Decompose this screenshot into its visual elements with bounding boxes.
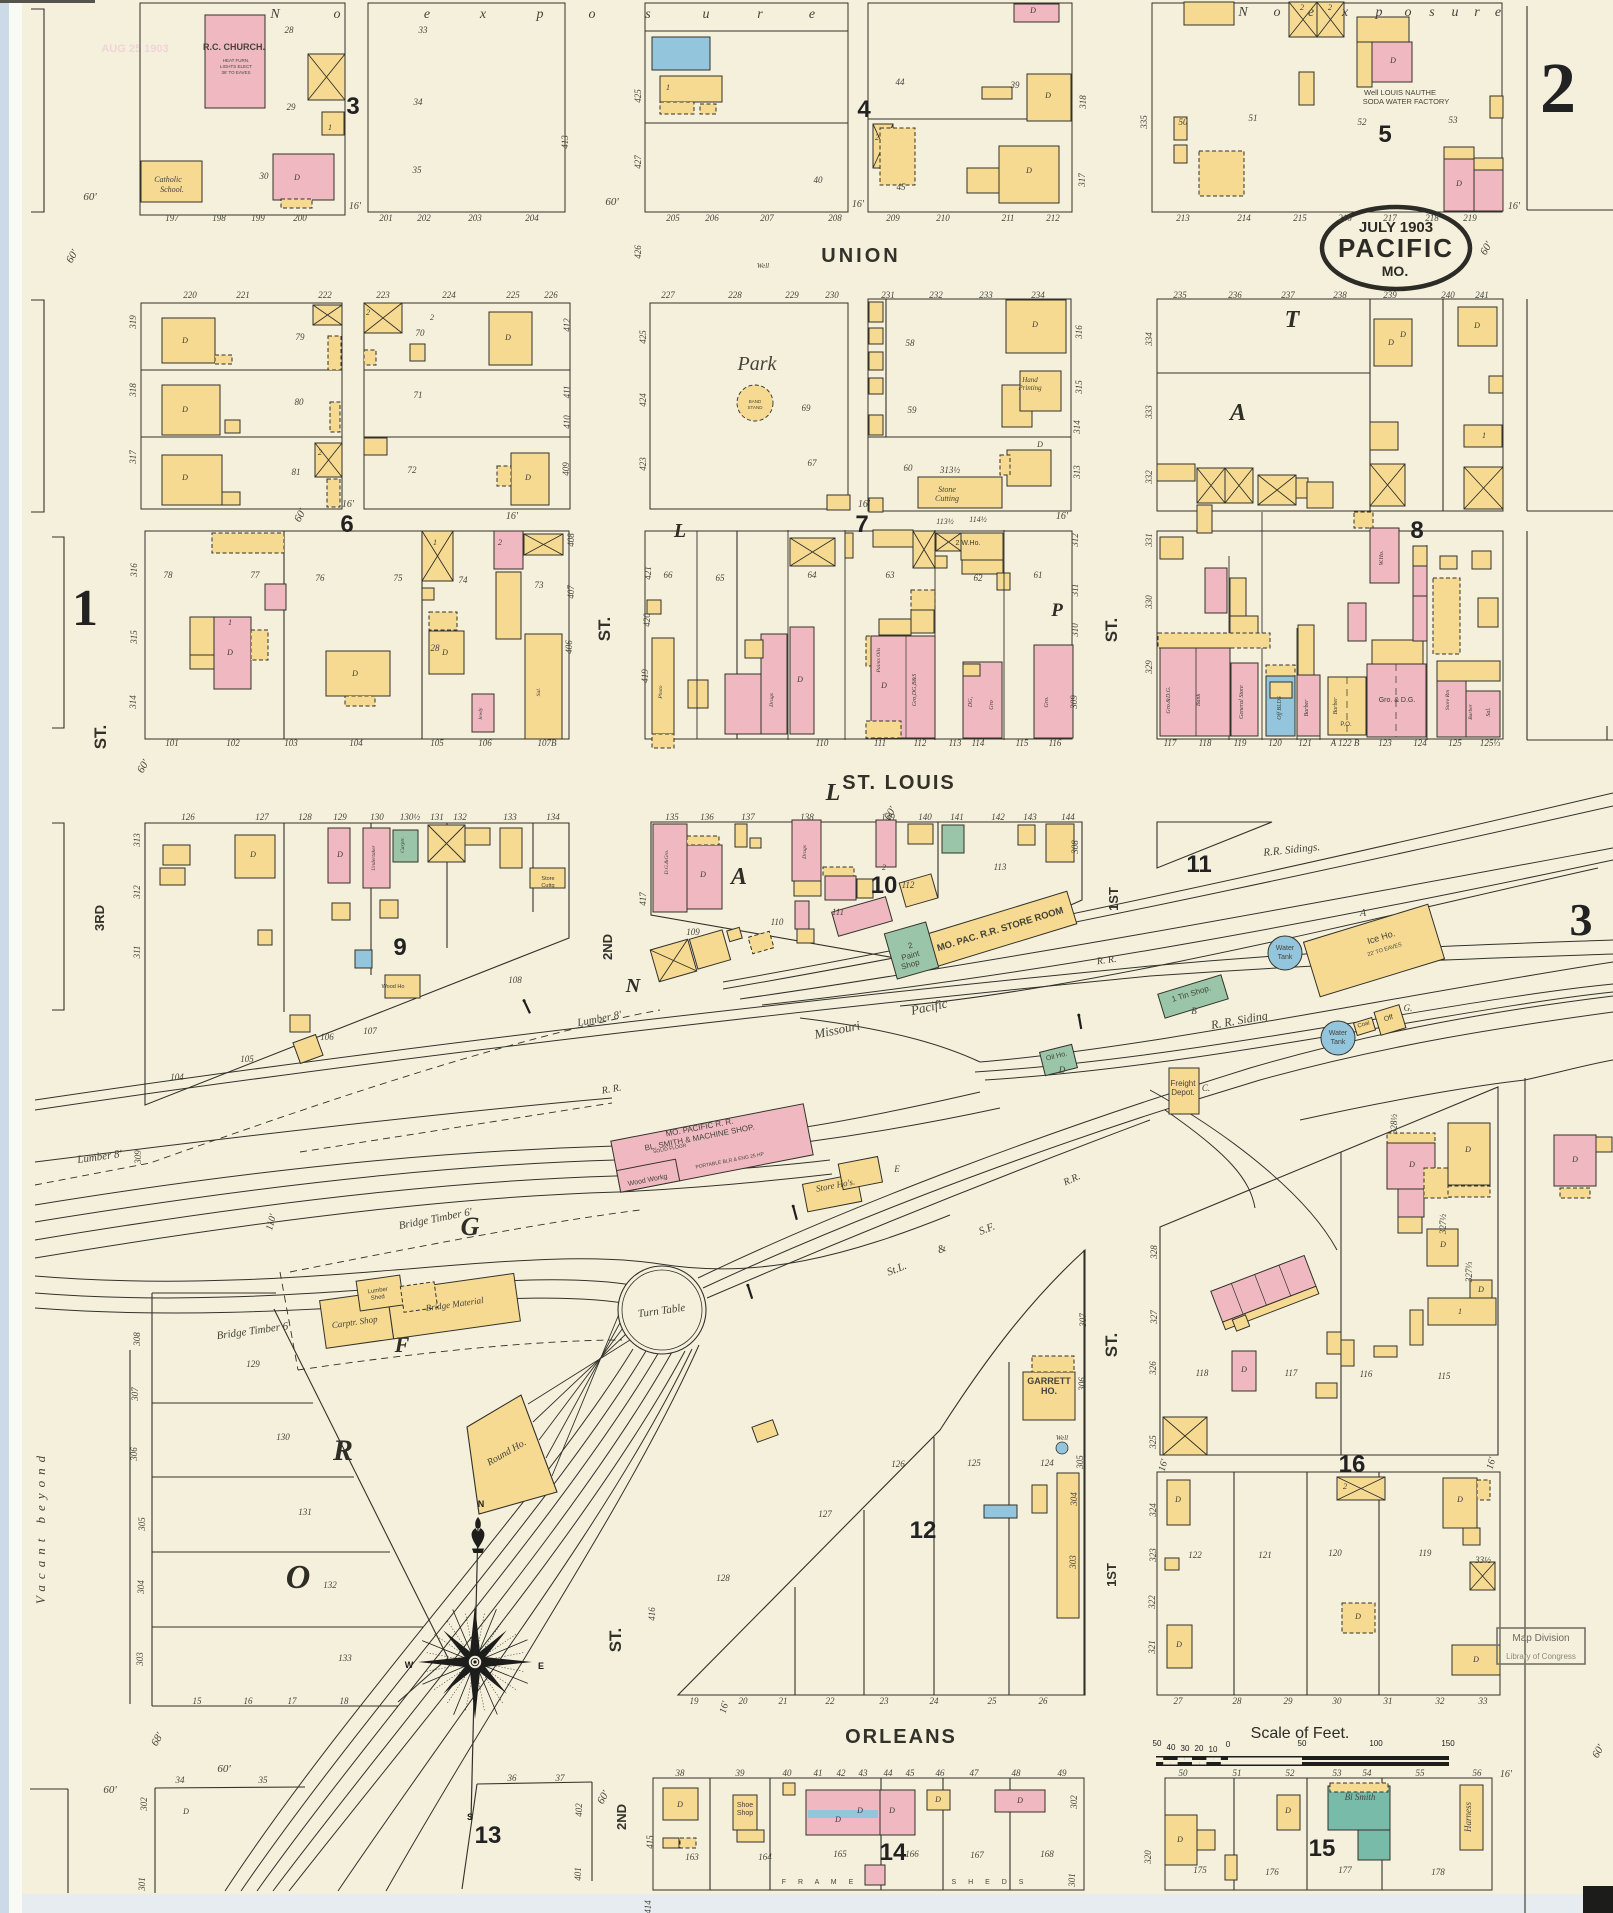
svg-text:HEAT FURN.: HEAT FURN.: [223, 58, 250, 63]
svg-text:314: 314: [128, 695, 138, 710]
svg-text:R.C. CHURCH.: R.C. CHURCH.: [203, 42, 265, 52]
svg-text:D: D: [1240, 1365, 1247, 1374]
svg-text:210: 210: [936, 213, 950, 223]
svg-text:9: 9: [393, 934, 406, 961]
svg-text:45: 45: [906, 1768, 916, 1778]
svg-text:28: 28: [431, 643, 441, 653]
svg-text:144: 144: [1061, 812, 1075, 822]
svg-text:35: 35: [258, 1775, 269, 1785]
svg-text:311: 311: [1070, 584, 1080, 598]
svg-text:s: s: [1429, 5, 1435, 20]
svg-text:302: 302: [1069, 1795, 1079, 1810]
svg-text:42: 42: [837, 1768, 847, 1778]
svg-text:316: 316: [129, 563, 139, 578]
svg-text:217: 217: [1383, 213, 1397, 223]
svg-text:317: 317: [1077, 173, 1087, 188]
svg-text:225: 225: [506, 290, 520, 300]
svg-text:234: 234: [1031, 290, 1045, 300]
svg-text:334: 334: [1144, 332, 1154, 347]
svg-text:66: 66: [664, 570, 674, 580]
svg-text:3RD: 3RD: [92, 905, 107, 931]
svg-text:D: D: [1029, 6, 1036, 15]
svg-text:2: 2: [1328, 3, 1332, 12]
svg-text:2ND: 2ND: [614, 1804, 629, 1830]
svg-text:16': 16': [342, 499, 355, 510]
svg-text:Off BLDS: Off BLDS: [1276, 696, 1283, 720]
svg-text:136: 136: [700, 812, 714, 822]
svg-text:Freight: Freight: [1171, 1079, 1197, 1088]
svg-text:D: D: [504, 333, 511, 342]
svg-text:20: 20: [1195, 1744, 1204, 1753]
svg-text:D: D: [699, 870, 706, 879]
svg-text:D: D: [336, 850, 343, 859]
svg-text:327½: 327½: [1438, 1214, 1448, 1236]
svg-text:17: 17: [288, 1696, 298, 1706]
svg-text:60': 60': [217, 1763, 231, 1775]
svg-text:D.G.&Gro.: D.G.&Gro.: [664, 849, 670, 875]
svg-text:77: 77: [251, 570, 261, 580]
svg-text:4: 4: [857, 96, 871, 123]
svg-text:Gro: Gro: [989, 700, 995, 709]
svg-text:54: 54: [1363, 1768, 1373, 1778]
svg-text:113: 113: [994, 862, 1007, 872]
svg-text:20: 20: [739, 1696, 749, 1706]
svg-text:199: 199: [251, 213, 265, 223]
svg-text:107B: 107B: [538, 738, 558, 748]
svg-text:R: R: [332, 1434, 353, 1467]
svg-text:406: 406: [564, 640, 574, 654]
svg-text:1ST: 1ST: [1106, 887, 1121, 911]
svg-text:A: A: [1228, 400, 1246, 426]
svg-text:74: 74: [459, 575, 469, 585]
svg-text:2: 2: [1300, 3, 1304, 12]
svg-text:229: 229: [785, 290, 799, 300]
svg-text:33: 33: [1478, 1696, 1489, 1706]
svg-text:D: D: [1389, 56, 1396, 65]
svg-text:407: 407: [566, 585, 576, 599]
svg-text:E: E: [893, 1164, 900, 1174]
svg-text:W: W: [405, 1660, 414, 1670]
svg-text:D: D: [441, 648, 448, 657]
svg-text:2ND: 2ND: [600, 934, 615, 960]
svg-text:10: 10: [871, 872, 898, 899]
svg-text:47: 47: [970, 1768, 980, 1778]
svg-text:HO.: HO.: [1041, 1386, 1057, 1396]
svg-text:335: 335: [1139, 115, 1149, 130]
svg-text:164: 164: [758, 1852, 772, 1862]
svg-text:p: p: [536, 7, 544, 22]
svg-text:133: 133: [503, 812, 517, 822]
svg-text:15: 15: [193, 1696, 203, 1706]
svg-text:e: e: [809, 7, 815, 22]
svg-text:15: 15: [1309, 1835, 1336, 1862]
svg-text:D: D: [1455, 179, 1462, 188]
svg-text:50: 50: [1298, 1739, 1307, 1748]
svg-text:D: D: [1399, 330, 1406, 339]
svg-text:53: 53: [1333, 1768, 1343, 1778]
svg-text:P.O.: P.O.: [1340, 722, 1352, 728]
svg-text:Gro,DG,B&S: Gro,DG,B&S: [912, 674, 918, 706]
svg-text:46: 46: [936, 1768, 946, 1778]
svg-text:2: 2: [1540, 48, 1576, 128]
svg-text:x: x: [479, 7, 487, 22]
svg-text:43: 43: [859, 1768, 869, 1778]
svg-text:Drugs: Drugs: [769, 693, 775, 708]
svg-text:12: 12: [910, 1517, 937, 1544]
svg-text:S H E D S: S H E D S: [952, 1879, 1029, 1886]
svg-text:Barber: Barber: [1304, 699, 1310, 717]
svg-text:Park: Park: [737, 353, 778, 375]
svg-text:59: 59: [908, 405, 918, 415]
svg-text:STAND: STAND: [748, 405, 764, 410]
svg-text:307: 307: [130, 1387, 140, 1402]
svg-text:UNION: UNION: [821, 245, 900, 267]
svg-text:D: D: [834, 1815, 841, 1824]
svg-text:1: 1: [228, 618, 232, 627]
svg-text:327⅓: 327⅓: [1464, 1262, 1474, 1284]
svg-text:128: 128: [716, 1573, 730, 1583]
svg-text:Barber: Barber: [1333, 697, 1339, 715]
svg-text:235: 235: [1173, 290, 1187, 300]
svg-text:52: 52: [1286, 1768, 1296, 1778]
svg-text:Store Rm: Store Rm: [1445, 690, 1451, 710]
svg-text:402: 402: [574, 1803, 584, 1817]
svg-text:425: 425: [638, 330, 648, 344]
svg-text:106: 106: [320, 1032, 334, 1042]
svg-text:16': 16': [1056, 511, 1069, 522]
svg-text:73: 73: [535, 580, 545, 590]
svg-text:36' TO EAVES: 36' TO EAVES: [221, 70, 250, 75]
svg-text:52: 52: [1358, 117, 1368, 127]
svg-text:Wood Ho: Wood Ho: [382, 984, 405, 990]
svg-text:Tank: Tank: [1278, 954, 1293, 961]
svg-text:119: 119: [1234, 738, 1247, 748]
svg-text:ST.: ST.: [606, 1628, 625, 1653]
svg-text:240: 240: [1441, 290, 1455, 300]
svg-text:LIGHTS ELECT: LIGHTS ELECT: [220, 64, 252, 69]
svg-text:218: 218: [1425, 213, 1439, 223]
svg-text:317: 317: [128, 450, 138, 465]
svg-text:2: 2: [318, 448, 322, 457]
svg-text:228: 228: [728, 290, 742, 300]
svg-text:120: 120: [1328, 1548, 1342, 1558]
svg-text:112: 112: [902, 880, 915, 890]
svg-text:214: 214: [1237, 213, 1251, 223]
svg-text:10: 10: [1209, 1745, 1218, 1754]
svg-text:128: 128: [298, 812, 312, 822]
svg-text:305: 305: [137, 1517, 147, 1532]
svg-text:B: B: [1191, 1006, 1197, 1016]
svg-text:208: 208: [828, 213, 842, 223]
svg-text:30: 30: [1181, 1744, 1190, 1753]
svg-text:215: 215: [1293, 213, 1307, 223]
svg-text:81: 81: [292, 467, 301, 477]
svg-text:231: 231: [881, 290, 895, 300]
svg-text:207: 207: [760, 213, 774, 223]
svg-text:321: 321: [1147, 1640, 1157, 1655]
svg-text:Cutting: Cutting: [935, 494, 959, 503]
svg-text:s: s: [645, 7, 651, 22]
svg-text:141: 141: [950, 812, 964, 822]
svg-text:2 W.Ho.: 2 W.Ho.: [956, 540, 981, 547]
svg-text:323: 323: [1148, 1548, 1158, 1563]
svg-text:Water: Water: [1276, 945, 1295, 952]
svg-text:53: 53: [1449, 115, 1459, 125]
svg-text:121: 121: [1298, 738, 1312, 748]
svg-text:142: 142: [991, 812, 1005, 822]
svg-text:o: o: [1274, 5, 1281, 20]
svg-text:301: 301: [1067, 1873, 1077, 1888]
svg-text:236: 236: [1228, 290, 1242, 300]
svg-text:30: 30: [259, 171, 270, 181]
svg-text:130: 130: [370, 812, 384, 822]
svg-text:415: 415: [645, 1835, 655, 1849]
svg-text:303: 303: [135, 1652, 145, 1667]
svg-text:F R A M E: F R A M E: [782, 1879, 859, 1886]
svg-text:D: D: [249, 850, 256, 859]
svg-text:138: 138: [800, 812, 814, 822]
svg-text:125⅓: 125⅓: [1480, 738, 1501, 748]
svg-text:D: D: [1439, 1240, 1446, 1249]
svg-text:125: 125: [1448, 738, 1462, 748]
svg-text:E: E: [538, 1661, 544, 1671]
svg-text:114½: 114½: [969, 515, 986, 524]
svg-text:8: 8: [1410, 517, 1423, 544]
svg-text:40: 40: [814, 175, 824, 185]
svg-text:o: o: [334, 7, 341, 22]
svg-text:315: 315: [129, 630, 139, 645]
svg-text:44: 44: [896, 77, 906, 87]
svg-text:General Store: General Store: [1239, 685, 1245, 719]
svg-text:C.: C.: [1202, 1083, 1210, 1093]
svg-text:G: G: [461, 1212, 480, 1241]
svg-text:O: O: [286, 1559, 311, 1596]
svg-text:420: 420: [642, 613, 652, 627]
svg-text:115: 115: [1438, 1371, 1451, 1381]
svg-text:61: 61: [1034, 570, 1043, 580]
svg-text:34: 34: [413, 97, 424, 107]
svg-text:D: D: [181, 473, 188, 482]
svg-text:320: 320: [1143, 1850, 1153, 1865]
svg-text:79: 79: [296, 332, 306, 342]
svg-text:Carptr.: Carptr.: [400, 837, 406, 853]
svg-text:N: N: [269, 7, 280, 22]
svg-text:233: 233: [979, 290, 993, 300]
svg-text:311: 311: [132, 946, 142, 960]
svg-text:D: D: [888, 1806, 895, 1815]
svg-text:D: D: [1571, 1155, 1578, 1164]
svg-text:N: N: [1237, 5, 1248, 20]
svg-text:School.: School.: [160, 185, 184, 194]
svg-text:S: S: [467, 1812, 473, 1822]
svg-text:331: 331: [1144, 533, 1154, 548]
svg-text:230: 230: [825, 290, 839, 300]
svg-text:1: 1: [433, 538, 437, 547]
svg-text:175: 175: [1193, 1865, 1207, 1875]
svg-text:Hand: Hand: [1021, 376, 1038, 384]
svg-text:222: 222: [318, 290, 332, 300]
svg-text:326: 326: [1148, 1361, 1158, 1376]
svg-text:132: 132: [453, 812, 467, 822]
svg-text:202: 202: [417, 213, 431, 223]
svg-text:26: 26: [1039, 1696, 1049, 1706]
svg-text:D: D: [1284, 1806, 1291, 1815]
svg-text:226: 226: [544, 290, 558, 300]
svg-text:314: 314: [1072, 420, 1082, 435]
svg-text:241: 241: [1475, 290, 1489, 300]
svg-text:Well LOUIS NAUTHE: Well LOUIS NAUTHE: [1364, 88, 1436, 97]
svg-text:124: 124: [1413, 738, 1427, 748]
svg-text:Gro. & D.G.: Gro. & D.G.: [1379, 697, 1416, 704]
svg-text:16': 16': [1508, 201, 1521, 212]
svg-text:117: 117: [1164, 738, 1177, 748]
svg-text:D: D: [1016, 1796, 1023, 1805]
svg-text:3: 3: [346, 93, 359, 120]
svg-text:D: D: [1387, 338, 1394, 347]
svg-text:124: 124: [1040, 1458, 1054, 1468]
svg-text:237: 237: [1281, 290, 1295, 300]
svg-text:35: 35: [412, 165, 423, 175]
svg-text:69: 69: [802, 403, 812, 413]
svg-text:332: 332: [1144, 470, 1154, 485]
svg-text:D: D: [181, 336, 188, 345]
svg-text:327: 327: [1149, 1310, 1159, 1325]
svg-text:60': 60': [605, 196, 619, 208]
svg-text:302: 302: [139, 1797, 149, 1812]
svg-text:D: D: [1354, 1612, 1361, 1621]
svg-text:N: N: [625, 975, 642, 997]
svg-text:D: D: [1408, 1160, 1415, 1169]
svg-text:318: 318: [128, 383, 138, 398]
svg-text:21: 21: [779, 1696, 788, 1706]
svg-text:1ST: 1ST: [1104, 1563, 1119, 1587]
svg-text:304: 304: [1069, 1492, 1079, 1507]
svg-text:163: 163: [685, 1852, 699, 1862]
svg-text:125: 125: [967, 1458, 981, 1468]
svg-text:D: D: [524, 473, 531, 482]
svg-text:203: 203: [468, 213, 482, 223]
svg-text:424: 424: [638, 393, 648, 407]
svg-text:D: D: [880, 681, 887, 690]
svg-text:7: 7: [855, 511, 868, 538]
svg-text:Gro.: Gro.: [1044, 697, 1050, 708]
svg-text:62: 62: [974, 573, 984, 583]
svg-text:120: 120: [1268, 738, 1282, 748]
svg-text:44: 44: [884, 1768, 894, 1778]
svg-text:5: 5: [1378, 121, 1391, 148]
svg-text:409: 409: [561, 462, 571, 476]
svg-text:40: 40: [783, 1768, 793, 1778]
svg-text:BAND: BAND: [749, 399, 762, 404]
svg-text:D: D: [676, 1800, 683, 1809]
svg-text:1: 1: [72, 580, 98, 637]
svg-text:417: 417: [638, 892, 648, 906]
svg-text:2: 2: [430, 313, 434, 322]
svg-text:425: 425: [633, 89, 643, 103]
svg-text:116: 116: [1360, 1369, 1373, 1379]
svg-text:1: 1: [1482, 431, 1486, 440]
svg-text:1: 1: [1458, 1307, 1462, 1316]
svg-text:Depot.: Depot.: [1171, 1088, 1195, 1097]
svg-text:127: 127: [255, 812, 269, 822]
svg-text:18: 18: [340, 1696, 350, 1706]
svg-text:118: 118: [1196, 1368, 1209, 1378]
svg-text:x: x: [1341, 5, 1349, 20]
svg-text:319: 319: [128, 315, 138, 330]
svg-text:D: D: [1464, 1145, 1471, 1154]
svg-text:60': 60': [83, 191, 97, 203]
svg-text:140: 140: [918, 812, 932, 822]
svg-text:421: 421: [643, 566, 653, 580]
svg-text:211: 211: [1002, 213, 1015, 223]
svg-text:118: 118: [1199, 738, 1212, 748]
svg-text:2: 2: [366, 308, 370, 317]
svg-text:ST. LOUIS: ST. LOUIS: [842, 772, 956, 794]
svg-text:Printing: Printing: [1017, 384, 1042, 392]
svg-text:A: A: [729, 864, 747, 890]
svg-text:Sal.: Sal.: [536, 688, 542, 696]
svg-text:113½: 113½: [936, 517, 953, 526]
svg-text:24: 24: [930, 1696, 940, 1706]
svg-text:110: 110: [816, 738, 829, 748]
svg-text:2: 2: [498, 538, 502, 547]
svg-text:22: 22: [826, 1696, 836, 1706]
svg-text:75: 75: [394, 573, 404, 583]
svg-text:307: 307: [1078, 1313, 1088, 1328]
svg-text:Catholic: Catholic: [154, 175, 182, 184]
svg-text:36: 36: [507, 1773, 518, 1783]
svg-text:134: 134: [546, 812, 560, 822]
svg-text:121: 121: [1258, 1550, 1272, 1560]
svg-text:11: 11: [1186, 851, 1211, 878]
svg-text:r: r: [1474, 5, 1480, 20]
svg-text:308: 308: [132, 1332, 142, 1347]
svg-text:113: 113: [949, 738, 962, 748]
svg-text:325: 325: [1148, 1435, 1158, 1450]
svg-text:50: 50: [1179, 117, 1189, 127]
svg-text:39: 39: [1010, 80, 1021, 90]
svg-text:MO.: MO.: [1382, 263, 1408, 279]
svg-text:150: 150: [1441, 1739, 1455, 1748]
svg-text:Library of Congress: Library of Congress: [1506, 1652, 1576, 1661]
svg-text:177: 177: [1338, 1865, 1352, 1875]
svg-text:419: 419: [640, 669, 650, 683]
svg-text:108: 108: [508, 975, 522, 985]
svg-text:14: 14: [880, 1839, 907, 1866]
svg-text:Shoe: Shoe: [737, 1802, 753, 1809]
svg-text:209: 209: [886, 213, 900, 223]
svg-text:165: 165: [833, 1849, 847, 1859]
svg-text:212: 212: [1046, 213, 1060, 223]
svg-text:114: 114: [972, 738, 985, 748]
svg-text:304: 304: [136, 1580, 146, 1595]
svg-text:309: 309: [1069, 695, 1079, 710]
svg-text:101: 101: [165, 738, 179, 748]
svg-text:GARRETT: GARRETT: [1027, 1376, 1071, 1386]
svg-text:310: 310: [1070, 623, 1080, 638]
svg-text:L: L: [673, 520, 686, 542]
svg-text:168: 168: [1040, 1849, 1054, 1859]
svg-text:50: 50: [1179, 1768, 1189, 1778]
svg-text:30: 30: [1332, 1696, 1343, 1706]
svg-text:e: e: [424, 7, 430, 22]
svg-text:28: 28: [1233, 1696, 1243, 1706]
svg-text:143: 143: [1023, 812, 1037, 822]
svg-text:F: F: [394, 1332, 410, 1357]
svg-text:322: 322: [1147, 1595, 1157, 1610]
svg-text:29: 29: [1284, 1696, 1294, 1706]
svg-text:e: e: [1308, 5, 1314, 20]
